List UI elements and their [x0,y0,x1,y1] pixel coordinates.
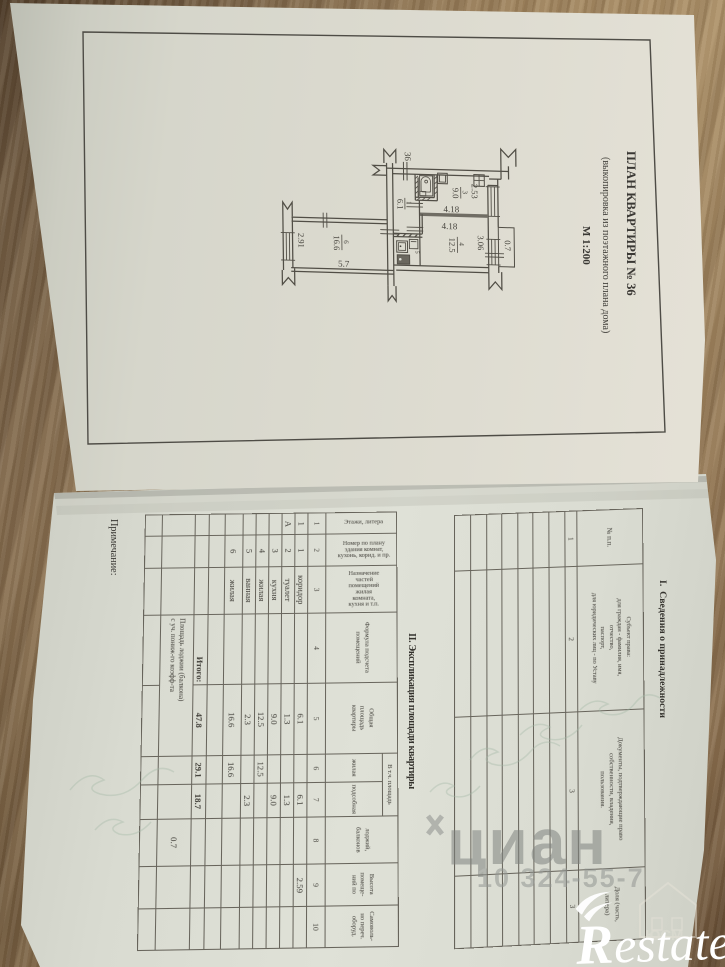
svg-text:ПЛАН КВАРТИРЫ № 36: ПЛАН КВАРТИРЫ № 36 [624,151,638,296]
svg-text:6: 6 [342,240,350,244]
svg-text:12.5: 12.5 [447,238,457,253]
svg-text:4.18: 4.18 [442,221,458,231]
svg-text:(выкопировка из поэтажного пла: (выкопировка из поэтажного плана дома) [600,157,611,333]
svg-text:3.06: 3.06 [476,235,486,250]
svg-text:2.53: 2.53 [470,184,480,199]
svg-text:0.7: 0.7 [503,240,513,251]
svg-text:36: 36 [403,152,413,162]
svg-text:4: 4 [457,242,465,246]
svg-text:5: 5 [413,251,419,254]
svg-text:5.7: 5.7 [338,259,350,269]
svg-text:М 1:200: М 1:200 [580,226,592,265]
svg-text:16.6: 16.6 [332,235,342,250]
svg-text:4.18: 4.18 [443,204,459,214]
svg-text:9.0: 9.0 [451,188,461,199]
svg-text:3: 3 [461,190,469,194]
svg-text:2.91: 2.91 [296,233,306,248]
svg-text:6.1: 6.1 [395,199,405,210]
